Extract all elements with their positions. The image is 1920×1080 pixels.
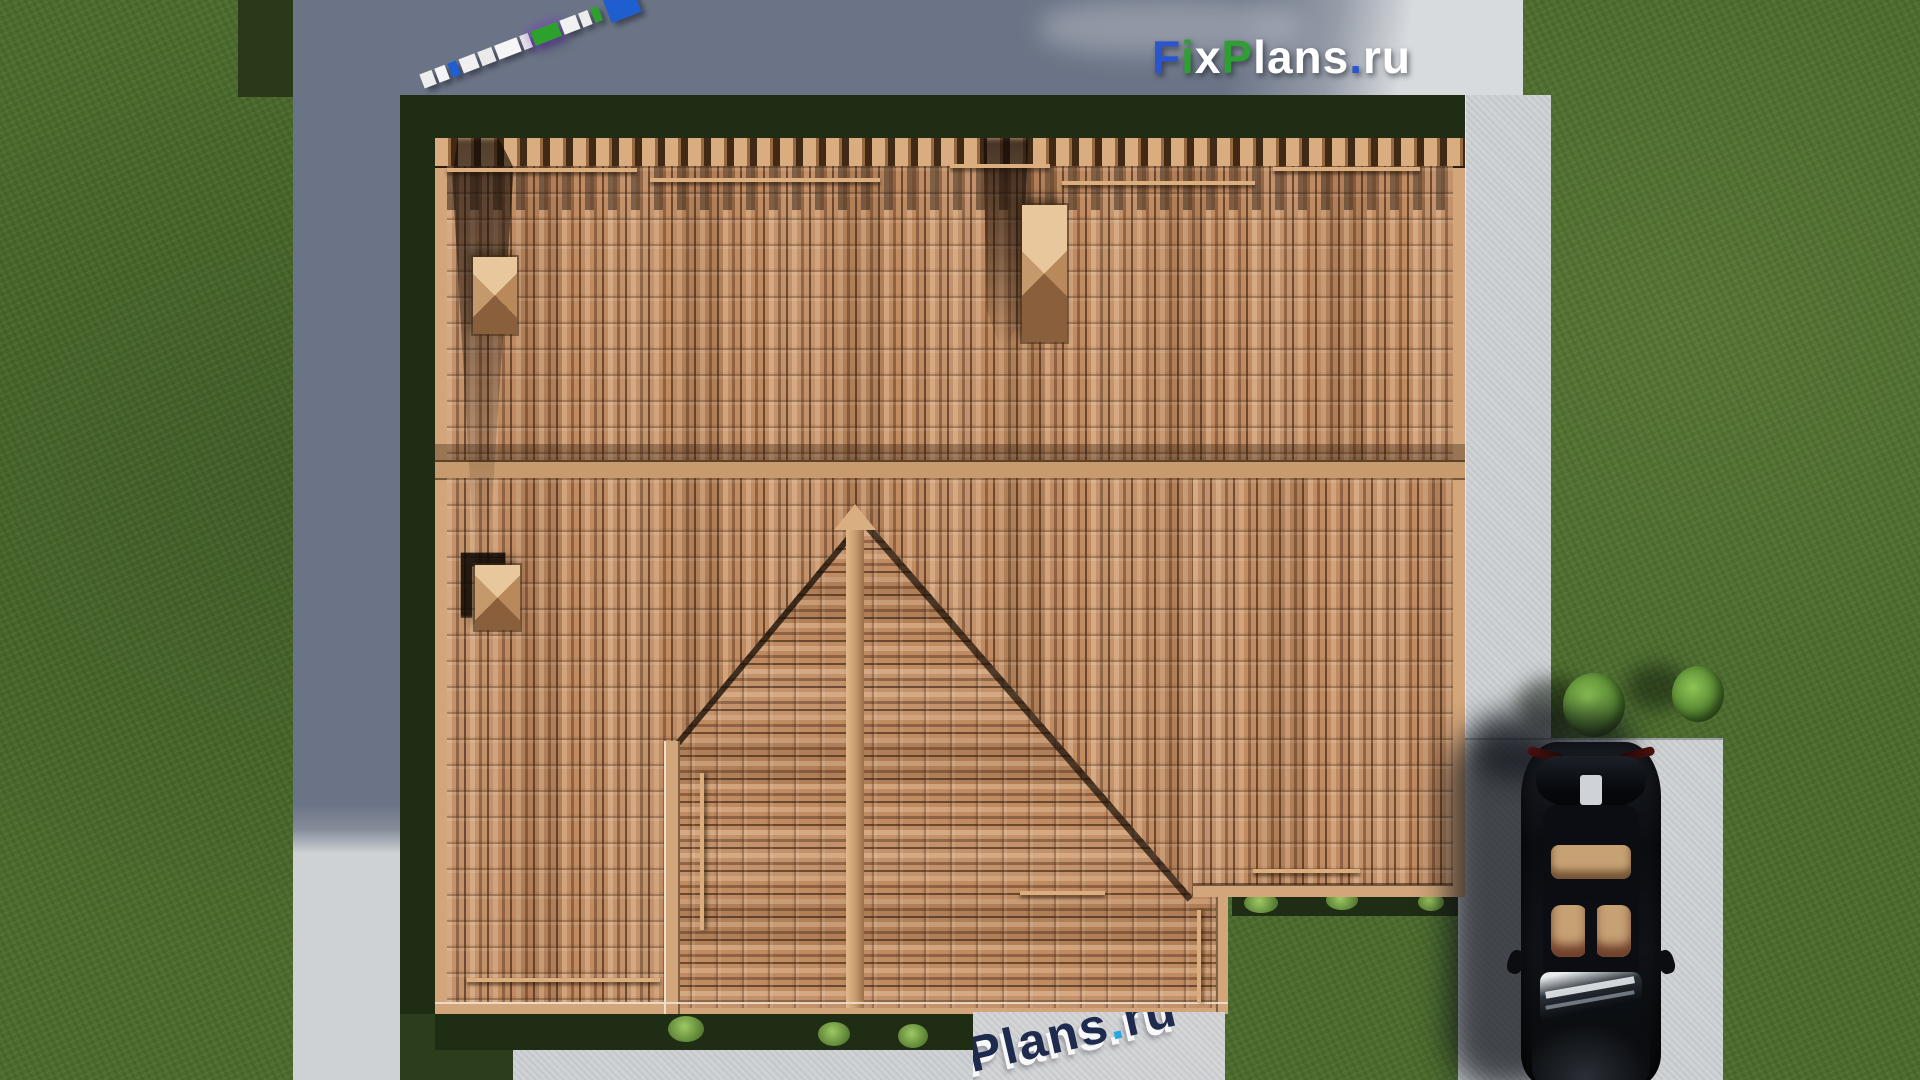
- shadow-strip-left: [400, 95, 435, 1015]
- snow-rail: [1273, 167, 1420, 171]
- shrub-tuft: [818, 1022, 850, 1046]
- shadow-grass-top-left-corner: [238, 0, 295, 97]
- snow-rail: [1253, 869, 1360, 873]
- left-walkway: [293, 95, 400, 1080]
- bush: [1672, 666, 1724, 722]
- chimney-upper-left: [473, 257, 517, 334]
- snow-rail: [1020, 891, 1105, 895]
- roof-gable-ridge: [846, 516, 864, 1008]
- logo-part: F: [1152, 31, 1181, 83]
- roof-upper-slope: [447, 166, 1453, 460]
- snow-rail: [447, 168, 637, 172]
- ruler-segment: [559, 15, 580, 35]
- car: [1521, 742, 1661, 1080]
- aerial-render-scene: Plans.ru FixPlans.ru: [0, 0, 1920, 1080]
- car-sunroof-opening: [1580, 775, 1602, 805]
- roof-upper-slope-ridge-shading: [447, 166, 1453, 210]
- shrub-tuft: [898, 1024, 928, 1048]
- snow-rail: [1062, 181, 1255, 185]
- snow-rail: [650, 178, 880, 182]
- snow-rail-vertical: [1197, 910, 1201, 1003]
- snow-rail: [950, 164, 1050, 168]
- logo-part: ru: [1363, 31, 1411, 83]
- roof-bottom-eave-highlight: [435, 1002, 1228, 1004]
- logo-part: i: [1181, 31, 1195, 83]
- car-front-seat-right: [1595, 905, 1631, 957]
- ruler-segment: [590, 6, 603, 23]
- ruler-segment: [477, 47, 496, 66]
- bottom-walkway: [513, 1048, 973, 1080]
- logo-part: lans: [1253, 31, 1349, 83]
- ruler-segment: [494, 37, 522, 60]
- logo-part: P: [1221, 31, 1253, 83]
- snow-rail: [467, 978, 660, 982]
- roof-upper-slope-eave-shading: [435, 444, 1465, 460]
- watermark-part: Plans: [973, 1012, 1115, 1080]
- shadow-strip-bottom: [435, 1014, 973, 1050]
- chimney-upper-right: [1022, 205, 1067, 342]
- car-front-seat-left: [1551, 905, 1587, 957]
- car-hood: [1532, 1022, 1650, 1080]
- ruler-segment: [434, 65, 450, 83]
- ruler-segment: [459, 53, 480, 73]
- house-roof: [435, 138, 1465, 1014]
- roof-gable-right-eave: [1216, 897, 1232, 1014]
- car-rear-seats: [1551, 845, 1631, 879]
- roof-gable-left-eave: [664, 741, 680, 1014]
- car-center-console: [1585, 900, 1597, 962]
- site-logo: FixPlans.ru: [1152, 30, 1411, 84]
- logo-part: x: [1195, 31, 1222, 83]
- car-glass-roof: [1543, 805, 1639, 980]
- ruler-segment: [530, 22, 562, 46]
- logo-dot: .: [1349, 31, 1363, 83]
- roof-lower-slope-right: [1193, 478, 1453, 885]
- watermark-patch: Plans.ru: [973, 1012, 1225, 1080]
- snow-rail-vertical: [700, 773, 704, 930]
- roof-right-eave-shadow-line: [1193, 883, 1453, 886]
- right-walkway: [1465, 95, 1551, 740]
- roof-main-ridge: [435, 460, 1465, 480]
- ruler-segment: [578, 10, 593, 28]
- shrub-tuft: [668, 1016, 704, 1042]
- chimney-lower-left: [475, 565, 520, 630]
- shadow-strip-top: [400, 95, 1465, 142]
- watermark-text: Plans.ru: [973, 1012, 1183, 1080]
